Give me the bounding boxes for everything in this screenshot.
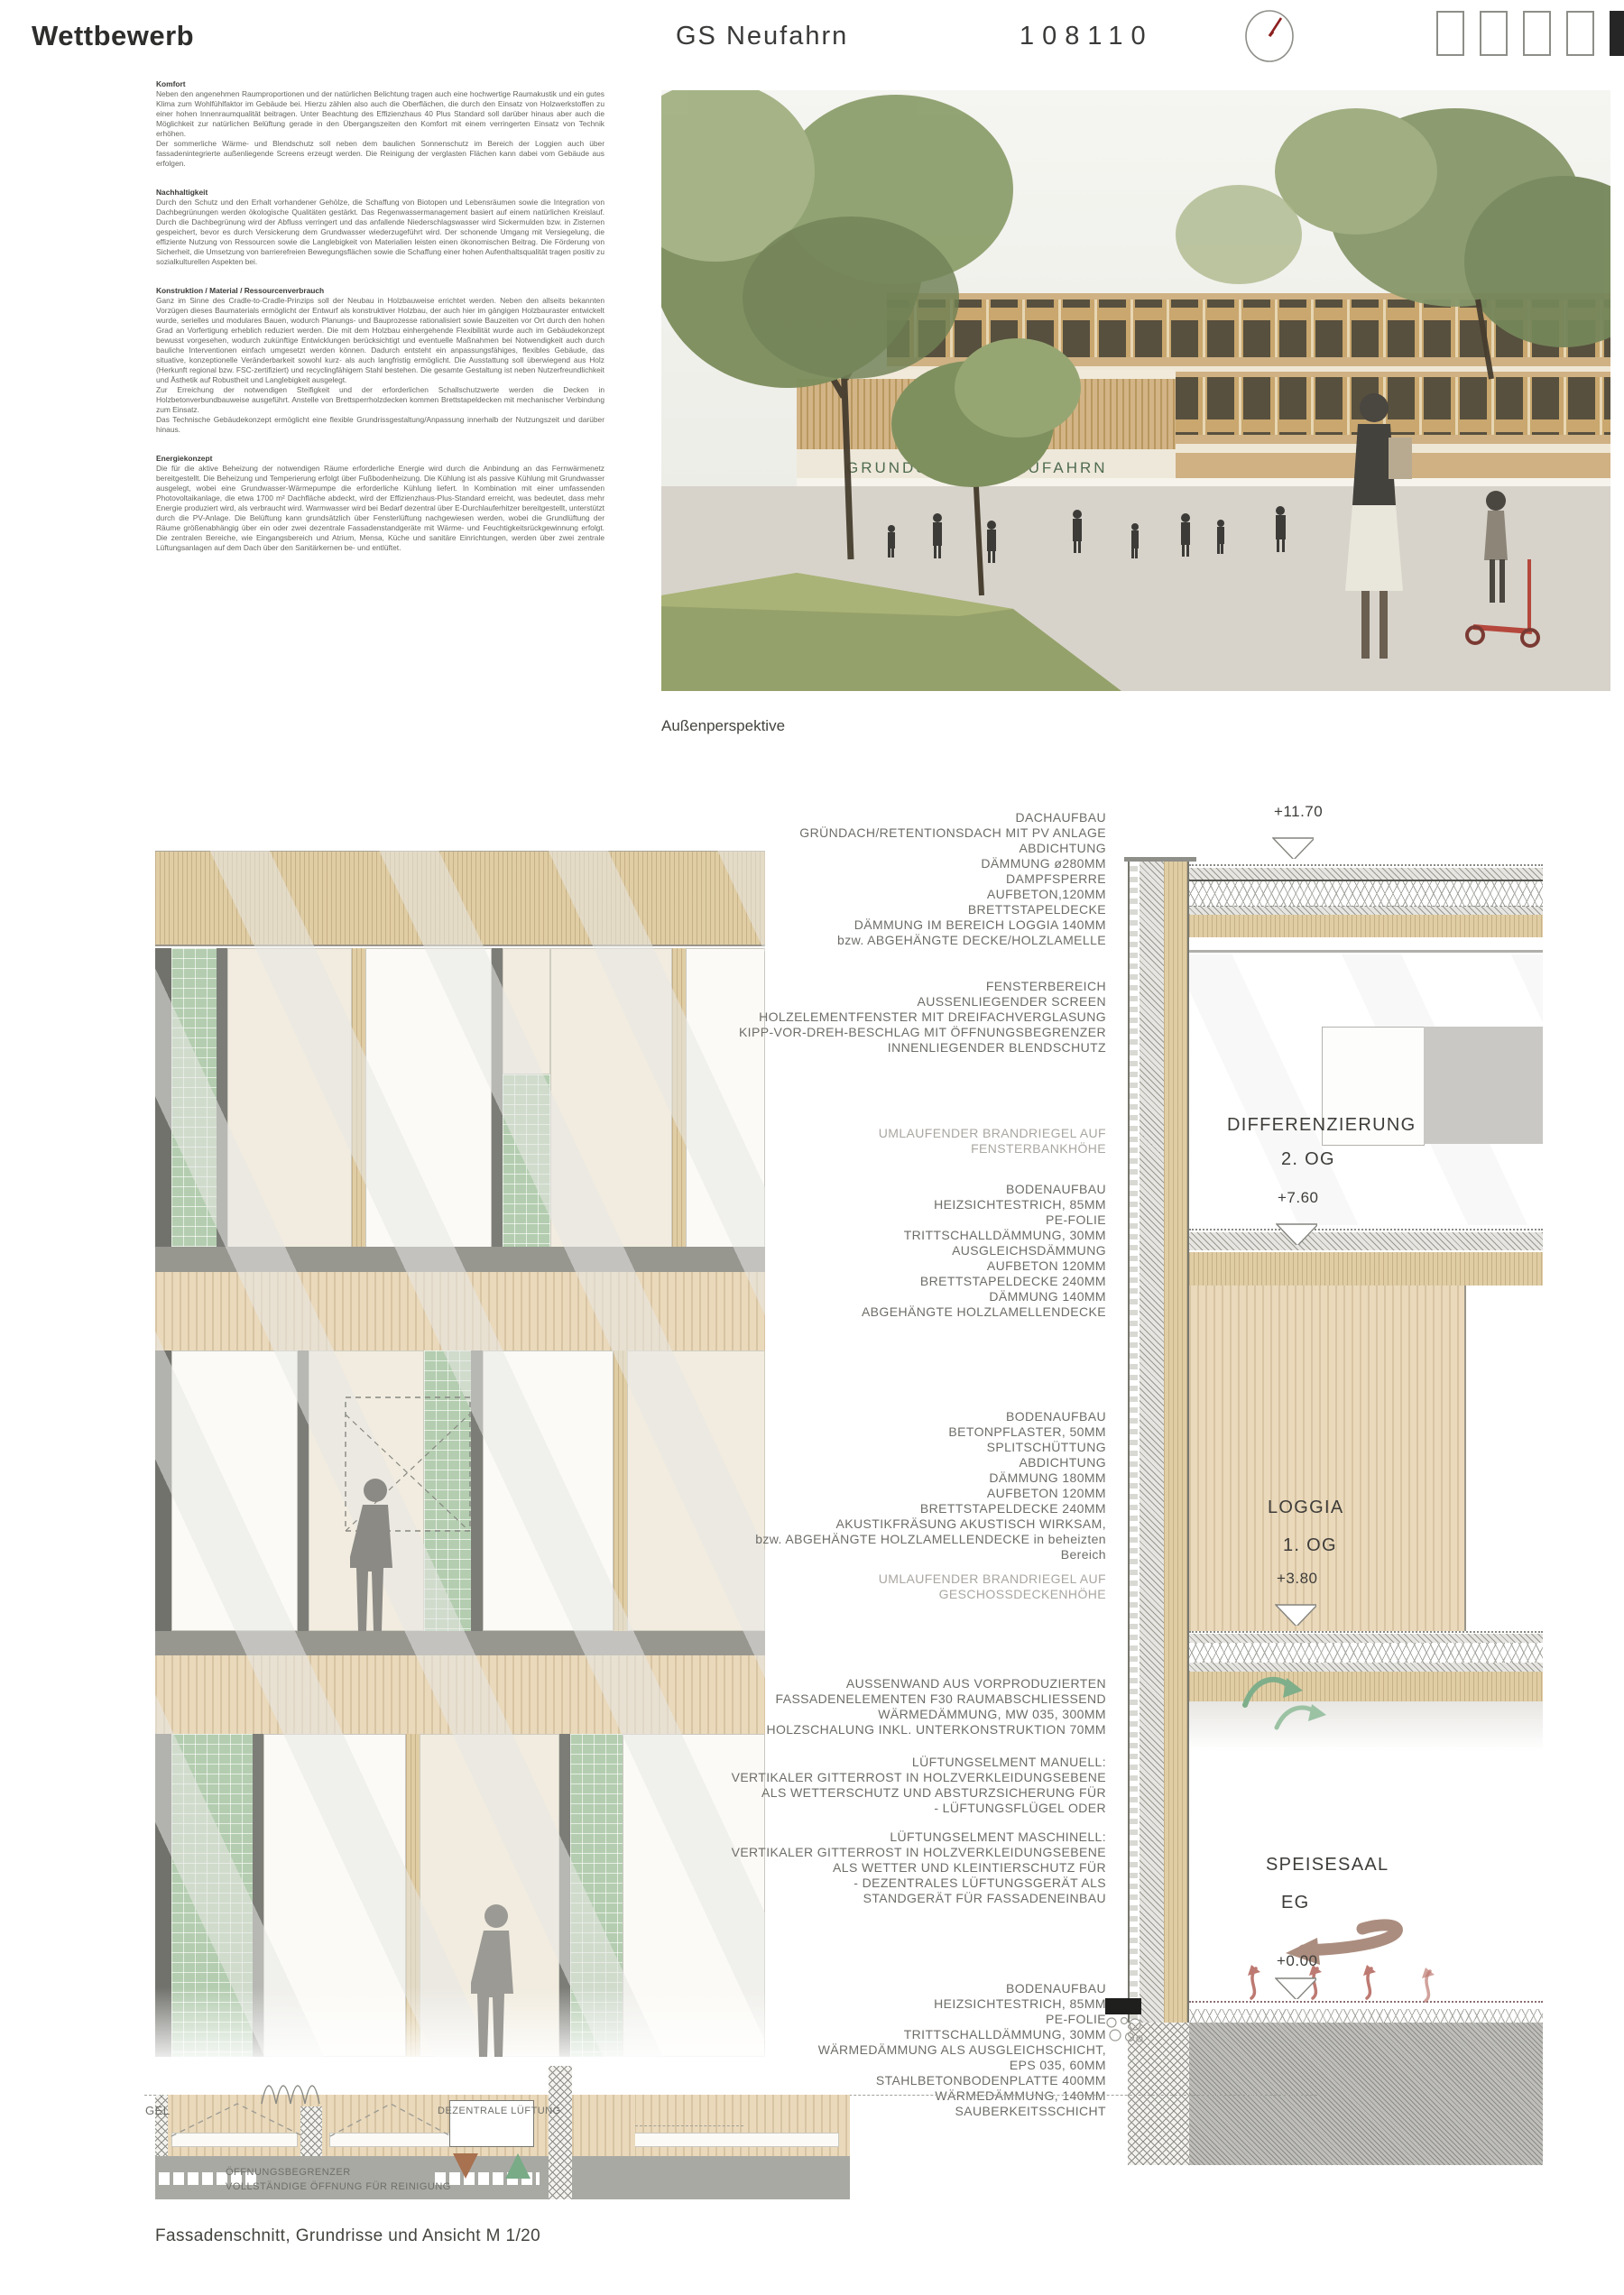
- annotation-line: bzw. ABGEHÄNGTE DECKE/HOLZLAMELLE: [475, 933, 1106, 948]
- annotation-line: WÄRMEDÄMMUNG, MW 035, 300MM: [475, 1707, 1106, 1722]
- base-beam: [1105, 1998, 1141, 2014]
- slab1-screed: [1189, 1634, 1543, 1643]
- annotation-line: BODENAUFBAU: [475, 1981, 1106, 1996]
- annotation-line: Bereich: [475, 1547, 1106, 1562]
- annotation-line: INNENLIEGENDER BLENDSCHUTZ: [475, 1040, 1106, 1055]
- level-label: +7.60: [1278, 1189, 1319, 1207]
- annotation-block-7: AUSSENWAND AUS VORPRODUZIERTENFASSADENEL…: [475, 1676, 1106, 1737]
- essay-heading: Komfort: [156, 79, 604, 89]
- annotation-line: AUFBETON 120MM: [475, 1258, 1106, 1274]
- annotation-line: FENSTERBANKHÖHE: [475, 1141, 1106, 1157]
- room-floor-label: 2. OG: [1281, 1149, 1335, 1170]
- exterior-perspective-rendering: GRUNDSCHULE NEUFAHRN: [661, 90, 1610, 691]
- annotation-block-2: FENSTERBEREICHAUSSENLIEGENDER SCREENHOLZ…: [475, 979, 1106, 1055]
- annotation-line: ABDICHTUNG: [475, 841, 1106, 856]
- annotation-line: DÄMMUNG IM BEREICH LOGGIA 140MM: [475, 917, 1106, 933]
- essay-heading: Nachhaltigkeit: [156, 188, 604, 198]
- entry-number: 108110: [1020, 22, 1154, 51]
- annotation-line: UMLAUFENDER BRANDRIEGEL AUF: [475, 1571, 1106, 1587]
- annotation-line: AUSSENLIEGENDER SCREEN: [475, 994, 1106, 1009]
- annotation-line: bzw. ABGEHÄNGTE HOLZLAMELLENDECKE in beh…: [475, 1532, 1106, 1547]
- slab1-topping-line: [1189, 1631, 1543, 1633]
- page-square-5: [1610, 11, 1624, 56]
- level-triangle-marker: [1275, 1977, 1316, 1999]
- wall-insulation: [1140, 862, 1164, 2084]
- interior-gray-wall: [1424, 1027, 1543, 1144]
- essay-paragraph: Der sommerliche Wärme- und Blendschutz s…: [156, 139, 604, 169]
- vent-box-label: DEZENTRALE LÜFTUNG: [438, 2106, 561, 2116]
- room-name-label: LOGGIA: [1268, 1498, 1344, 1518]
- annotation-line: AUFBETON 120MM: [475, 1486, 1106, 1501]
- annotation-line: BODENAUFBAU: [475, 1182, 1106, 1197]
- plan-dash-continue: [635, 2125, 743, 2126]
- slab1-topping2: [1189, 1663, 1543, 1672]
- annotation-block-4: BODENAUFBAUHEIZSICHTESTRICH, 85MMPE-FOLI…: [475, 1182, 1106, 1320]
- annotation-line: BODENAUFBAU: [475, 1409, 1106, 1424]
- interior-eg: [1189, 1701, 1543, 1751]
- annotation-line: PE-FOLIE: [475, 1212, 1106, 1228]
- annotation-line: UMLAUFENDER BRANDRIEGEL AUF: [475, 1126, 1106, 1141]
- slab2-brettstapel: [1189, 1252, 1543, 1286]
- annotation-line: KIPP-VOR-DREH-BESCHLAG MIT ÖFFNUNGSBEGRE…: [475, 1025, 1106, 1040]
- annotation-line: BRETTSTAPELDECKE 240MM: [475, 1501, 1106, 1516]
- annotation-line: ABDICHTUNG: [475, 1455, 1106, 1470]
- slab1-insulation: [1189, 1643, 1543, 1663]
- annotation-line: - DEZENTRALES LÜFTUNGSGERÄT ALS: [475, 1876, 1106, 1891]
- annotation-line: GRÜNDACH/RETENTIONSDACH MIT PV ANLAGE: [475, 825, 1106, 841]
- roof-gravel-line: [1189, 864, 1543, 866]
- annotation-line: DÄMMUNG ø280MM: [475, 856, 1106, 871]
- page-square-4: [1566, 11, 1594, 56]
- level-triangle-marker: [1275, 1604, 1316, 1626]
- ground-topping-line: [1189, 2001, 1543, 2005]
- plan-curtain-wave: [260, 2082, 332, 2106]
- annotation-line: TRITTSCHALLDÄMMUNG, 30MM: [475, 2027, 1106, 2042]
- annotation-line: HEIZSICHTESTRICH, 85MM: [475, 1996, 1106, 2012]
- roof-screed: [1189, 868, 1543, 880]
- annotation-line: LÜFTUNGSELMENT MANUELL:: [475, 1755, 1106, 1770]
- annotation-line: ALS WETTER UND KLEINTIERSCHUTZ FÜR: [475, 1860, 1106, 1876]
- annotation-line: DÄMMUNG 180MM: [475, 1470, 1106, 1486]
- roof-membrane: [1189, 880, 1543, 881]
- wall-cladding: [1130, 862, 1138, 2084]
- essay-paragraph: Das Technische Gebäudekonzept ermöglicht…: [156, 415, 604, 435]
- loggia-edge: [1464, 1286, 1466, 1631]
- annotation-line: WÄRMEDÄMMUNG ALS AUSGLEICHSCHICHT,: [475, 2042, 1106, 2058]
- essay-section-3: Konstruktion / Material / Ressourcenverb…: [156, 286, 604, 435]
- annotation-line: DAMPFSPERRE: [475, 871, 1106, 887]
- parapet-cap: [1124, 857, 1196, 862]
- level-label: +3.80: [1277, 1570, 1318, 1588]
- annotation-line: FASSADENELEMENTEN F30 RAUMABSCHLIESSEND: [475, 1691, 1106, 1707]
- level-label: +0.00: [1277, 1952, 1318, 1970]
- sheet-caption: Fassadenschnitt, Grundrisse und Ansicht …: [155, 2226, 540, 2246]
- slab2-screed: [1189, 1232, 1543, 1250]
- room-floor-label: EG: [1281, 1893, 1310, 1913]
- annotation-line: PE-FOLIE: [475, 2012, 1106, 2027]
- page-square-2: [1480, 11, 1508, 56]
- annotation-line: AUSGLEICHSDÄMMUNG: [475, 1243, 1106, 1258]
- annotation-line: ALS WETTERSCHUTZ UND ABSTURZSICHERUNG FÜ…: [475, 1785, 1106, 1801]
- plan-facade-stub: [572, 2095, 635, 2156]
- annotation-line: LÜFTUNGSELMENT MASCHINELL:: [475, 1830, 1106, 1845]
- gravel-bubbles: [1104, 2015, 1144, 2046]
- ground-insulation: [1189, 2009, 1543, 2023]
- annotation-line: ABGEHÄNGTE HOLZLAMELLENDECKE: [475, 1304, 1106, 1320]
- essay-heading: Energiekonzept: [156, 454, 604, 464]
- essay-section-2: NachhaltigkeitDurch den Schutz und den E…: [156, 188, 604, 267]
- annotation-block-5: BODENAUFBAUBETONPFLASTER, 50MMSPLITSCHÜT…: [475, 1409, 1106, 1562]
- project-name: GS Neufahrn: [676, 22, 848, 51]
- annotation-block-1: DACHAUFBAUGRÜNDACH/RETENTIONSDACH MIT PV…: [475, 810, 1106, 948]
- wall-outer-line: [1128, 862, 1130, 2084]
- annotation-line: HOLZSCHALUNG INKL. UNTERKONSTRUKTION 70M…: [475, 1722, 1106, 1737]
- annotation-block-8: LÜFTUNGSELMENT MANUELL:VERTIKALER GITTER…: [475, 1755, 1106, 1816]
- person-silhouette: [350, 1478, 401, 1633]
- annotation-line: VERTIKALER GITTERROST IN HOLZVERKLEIDUNG…: [475, 1770, 1106, 1785]
- annotation-line: BETONPFLASTER, 50MM: [475, 1424, 1106, 1440]
- level-triangle-marker: [1272, 837, 1314, 859]
- annotation-line: SPLITSCHÜTTUNG: [475, 1440, 1106, 1455]
- roof-topping: [1189, 907, 1543, 915]
- competition-label: Wettbewerb: [32, 20, 194, 52]
- annotation-line: BRETTSTAPELDECKE: [475, 902, 1106, 917]
- essay-paragraph: Durch den Schutz und den Erhalt vorhande…: [156, 198, 604, 267]
- page-indicator: [1436, 11, 1624, 56]
- annotation-line: TRITTSCHALLDÄMMUNG, 30MM: [475, 1228, 1106, 1243]
- perspective-caption: Außenperspektive: [661, 717, 785, 735]
- annotation-line: BRETTSTAPELDECKE 240MM: [475, 1274, 1106, 1289]
- essay-section-1: KomfortNeben den angenehmen Raumproporti…: [156, 79, 604, 169]
- annotation-line: DACHAUFBAU: [475, 810, 1106, 825]
- annotation-line: AUFBETON,120MM: [475, 887, 1106, 902]
- annotation-line: HEIZSICHTESTRICH, 85MM: [475, 1197, 1106, 1212]
- plan-fragment-label: GEL: [145, 2104, 171, 2117]
- slab2-topping-line: [1189, 1229, 1543, 1230]
- room-name-label: DIFFERENZIERUNG: [1227, 1115, 1416, 1136]
- roof-insulation-zigzag: [1189, 881, 1543, 907]
- essay-section-4: EnergiekonzeptDie für die aktive Beheizu…: [156, 454, 604, 553]
- ventilation-arrows-green: [1227, 1651, 1335, 1732]
- annotation-block-6: UMLAUFENDER BRANDRIEGEL AUFGESCHOSSDECKE…: [475, 1571, 1106, 1602]
- room-floor-label: 1. OG: [1283, 1535, 1337, 1556]
- essay-paragraph: Zur Erreichung der notwendigen Steifigke…: [156, 385, 604, 415]
- wall-timber: [1164, 862, 1187, 2084]
- annotation-line: AKUSTIKFRÄSUNG AKUSTISCH WIRKSAM,: [475, 1516, 1106, 1532]
- roof-brettstapel: [1189, 915, 1543, 937]
- annotation-line: AUSSENWAND AUS VORPRODUZIERTEN: [475, 1676, 1106, 1691]
- level-label: +11.70: [1274, 803, 1323, 821]
- annotation-block-3: UMLAUFENDER BRANDRIEGEL AUFFENSTERBANKHÖ…: [475, 1126, 1106, 1157]
- interior-2og: [1189, 954, 1543, 1225]
- annotation-line: HOLZELEMENTFENSTER MIT DREIFACHVERGLASUN…: [475, 1009, 1106, 1025]
- slab1-brettstapel: [1189, 1672, 1543, 1701]
- essay-paragraph: Die für die aktive Beheizung der notwend…: [156, 464, 604, 553]
- annotation-line: GESCHOSSDECKENHÖHE: [475, 1587, 1106, 1602]
- wall-inner-line: [1187, 862, 1189, 2084]
- loggia-wood: [1189, 1286, 1464, 1631]
- level-triangle-marker: [1276, 1223, 1317, 1245]
- annotation-line: FENSTERBEREICH: [475, 979, 1106, 994]
- essay-column: KomfortNeben den angenehmen Raumproporti…: [156, 79, 604, 553]
- annotation-line: VERTIKALER GITTERROST IN HOLZVERKLEIDUNG…: [475, 1845, 1106, 1860]
- annotation-block-9: LÜFTUNGSELMENT MASCHINELL:VERTIKALER GIT…: [475, 1830, 1106, 1906]
- essay-heading: Konstruktion / Material / Ressourcenverb…: [156, 286, 604, 296]
- page-square-3: [1523, 11, 1551, 56]
- vent-unit-arrows: [451, 2152, 541, 2182]
- room-name-label: SPEISESAAL: [1266, 1855, 1389, 1876]
- plan-section-wall: [549, 2066, 572, 2199]
- opening-note-line1: ÖFFNUNGSBEGRENZER: [226, 2167, 351, 2178]
- essay-paragraph: Ganz im Sinne des Cradle-to-Cradle-Prinz…: [156, 296, 604, 385]
- annotation-line: DÄMMUNG 140MM: [475, 1289, 1106, 1304]
- annotation-line: STANDGERÄT FÜR FASSADENEINBAU: [475, 1891, 1106, 1906]
- essay-paragraph: Neben den angenehmen Raumproportionen un…: [156, 89, 604, 139]
- clock-icon: [1243, 9, 1296, 63]
- annotation-line: - LÜFTUNGSFLÜGEL ODER: [475, 1801, 1106, 1816]
- ceiling-lamelle-line: [1189, 950, 1543, 953]
- opening-note-line2: VOLLSTÄNDIGE ÖFFNUNG FÜR REINIGUNG: [226, 2181, 451, 2192]
- page-square-1: [1436, 11, 1464, 56]
